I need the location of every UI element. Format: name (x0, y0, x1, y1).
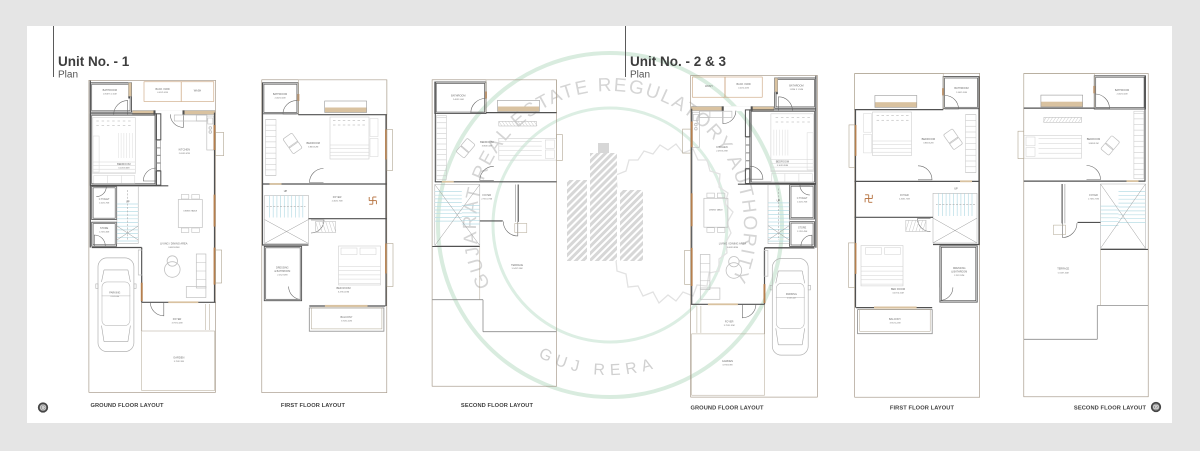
svg-text:FOYER: FOYER (173, 318, 182, 321)
svg-text:STORE: STORE (100, 227, 109, 230)
svg-text:1.74X1.45M: 1.74X1.45M (99, 231, 110, 233)
svg-text:3.86X3.2M: 3.86X3.2M (308, 146, 318, 148)
svg-text:PARKING: PARKING (109, 292, 120, 295)
svg-text:DINING TABLE: DINING TABLE (709, 209, 723, 212)
svg-text:WASH: WASH (705, 85, 713, 88)
svg-text:FIRST FLOOR LAYOUT: FIRST FLOOR LAYOUT (890, 405, 955, 411)
svg-text:4.01X1.41M: 4.01X1.41M (157, 92, 168, 94)
svg-text:FOYER: FOYER (900, 194, 909, 197)
svg-text:GROUND FLOOR LAYOUT: GROUND FLOOR LAYOUT (90, 403, 164, 409)
svg-text:BED ROOM: BED ROOM (336, 286, 350, 290)
svg-text:BED ROOM: BED ROOM (891, 287, 905, 291)
svg-text:BALCONY: BALCONY (889, 318, 901, 321)
svg-text:UP: UP (284, 190, 288, 193)
svg-text:& BATHROOM: & BATHROOM (951, 270, 967, 273)
svg-text:FOYER: FOYER (725, 321, 734, 324)
svg-text:FOYER: FOYER (482, 194, 491, 197)
svg-text:3.91X1.22M: 3.91X1.22M (890, 323, 901, 325)
svg-text:2.76X1.75M: 2.76X1.75M (1088, 199, 1099, 201)
svg-text:4.01X1.41M: 4.01X1.41M (738, 88, 749, 90)
svg-text:3.79X2.9M: 3.79X2.9M (174, 361, 184, 363)
svg-text:5.94X7.26M: 5.94X7.26M (1058, 272, 1069, 274)
svg-text:BEDROOM: BEDROOM (480, 140, 493, 144)
svg-text:2.5X5.0M: 2.5X5.0M (787, 298, 796, 300)
svg-text:C TOILET: C TOILET (797, 197, 808, 200)
svg-text:C TOILET: C TOILET (99, 198, 110, 201)
svg-text:LIVING / DINING AREA: LIVING / DINING AREA (719, 242, 747, 246)
svg-text:3.79X2.9M: 3.79X2.9M (722, 365, 732, 367)
svg-text:Plan: Plan (630, 70, 650, 81)
svg-text:TERRACE: TERRACE (511, 264, 523, 267)
svg-text:BEDROOM: BEDROOM (1087, 137, 1100, 141)
svg-text:KITCHEN: KITCHEN (716, 145, 728, 149)
svg-text:UP: UP (126, 201, 130, 204)
svg-text:STORE: STORE (798, 227, 807, 230)
svg-text:3.08X3.85M: 3.08X3.85M (727, 247, 738, 249)
svg-text:BATHROOM: BATHROOM (273, 93, 287, 96)
svg-text:UP: UP (777, 199, 781, 202)
svg-text:3.86X3.2M: 3.86X3.2M (1088, 143, 1098, 145)
svg-text:BATHROOM: BATHROOM (103, 89, 117, 92)
svg-text:3.79X1.32M: 3.79X1.32M (724, 325, 735, 327)
svg-text:3.47X4.15M: 3.47X4.15M (892, 293, 903, 295)
svg-text:1.16X1.75M: 1.16X1.75M (99, 202, 110, 204)
svg-text:3.47X4.15M: 3.47X4.15M (338, 291, 349, 293)
svg-text:3.79X1.32M: 3.79X1.32M (172, 322, 183, 324)
svg-text:GROUND FLOOR LAYOUT: GROUND FLOOR LAYOUT (690, 405, 764, 411)
svg-text:BATHROOM: BATHROOM (789, 84, 803, 87)
svg-text:1.85M X 1.50M: 1.85M X 1.50M (103, 93, 117, 95)
svg-text:BEDROOM: BEDROOM (306, 141, 319, 145)
svg-text:BACK YARD: BACK YARD (736, 83, 750, 86)
svg-text:BATHROOM: BATHROOM (1115, 89, 1129, 92)
svg-text:2.46X1.50M: 2.46X1.50M (956, 92, 967, 94)
svg-text:Unit No. - 2 & 3: Unit No. - 2 & 3 (630, 54, 726, 69)
svg-text:2.46X1.50M: 2.46X1.50M (1117, 94, 1128, 96)
svg-text:GARDEN: GARDEN (173, 356, 184, 360)
svg-text:Plan: Plan (58, 70, 78, 81)
svg-text:LIVING / DINING AREA: LIVING / DINING AREA (160, 242, 188, 246)
svg-text:1.16X1.75M: 1.16X1.75M (797, 201, 808, 203)
svg-text:09: 09 (1153, 405, 1159, 411)
svg-text:KITCHEN: KITCHEN (179, 148, 191, 152)
svg-text:08: 08 (40, 406, 46, 412)
svg-text:Unit No. - 1: Unit No. - 1 (58, 54, 130, 69)
svg-text:2.46X1.75M: 2.46X1.75M (899, 198, 910, 200)
svg-text:BALCONY: BALCONY (341, 316, 353, 319)
svg-text:& BATHROOM: & BATHROOM (274, 270, 290, 273)
svg-text:BEDROOM: BEDROOM (922, 137, 935, 141)
svg-text:2.09X3.47M: 2.09X3.47M (716, 150, 727, 152)
svg-text:BATHROOM: BATHROOM (451, 95, 465, 98)
svg-text:2.2X2.92M: 2.2X2.92M (277, 274, 287, 276)
svg-text:3.86X3.2M: 3.86X3.2M (482, 145, 492, 147)
svg-text:WASH: WASH (194, 90, 202, 93)
svg-text:2.46X1.50M: 2.46X1.50M (453, 99, 464, 101)
svg-text:5.94X7.26M: 5.94X7.26M (512, 268, 523, 270)
svg-text:SECOND FLOOR LAYOUT: SECOND FLOOR LAYOUT (461, 403, 534, 409)
svg-text:GARDEN: GARDEN (722, 359, 733, 363)
svg-text:3.91X1.22M: 3.91X1.22M (341, 320, 352, 322)
svg-text:FOYER: FOYER (1089, 194, 1098, 197)
svg-text:2.2X2.92M: 2.2X2.92M (954, 275, 964, 277)
svg-text:3.86X3.2M: 3.86X3.2M (923, 142, 933, 144)
svg-text:PARKING: PARKING (786, 293, 797, 296)
svg-text:2.76X1.75M: 2.76X1.75M (481, 198, 492, 200)
svg-text:2.46X1.50M: 2.46X1.50M (275, 97, 286, 99)
svg-text:BACK YARD: BACK YARD (155, 88, 169, 91)
svg-text:FOYER: FOYER (333, 196, 342, 199)
svg-text:2.46X1.75M: 2.46X1.75M (332, 200, 343, 202)
svg-text:SECOND FLOOR LAYOUT: SECOND FLOOR LAYOUT (1074, 406, 1147, 412)
svg-text:FIRST FLOOR LAYOUT: FIRST FLOOR LAYOUT (281, 403, 346, 409)
svg-text:TERRACE: TERRACE (1057, 268, 1069, 271)
svg-text:1.85M X 1.50M: 1.85M X 1.50M (790, 89, 804, 91)
svg-text:2.5X5.0M: 2.5X5.0M (111, 296, 120, 298)
svg-text:1.74X1.45M: 1.74X1.45M (797, 231, 808, 233)
svg-text:3.08X3.85M: 3.08X3.85M (168, 247, 179, 249)
svg-text:BEDROOM: BEDROOM (776, 160, 789, 164)
svg-text:BATHROOM: BATHROOM (954, 87, 968, 90)
svg-text:DINING TABLE: DINING TABLE (183, 210, 197, 213)
svg-text:UP: UP (954, 188, 958, 191)
svg-text:2.09X3.47M: 2.09X3.47M (179, 153, 190, 155)
